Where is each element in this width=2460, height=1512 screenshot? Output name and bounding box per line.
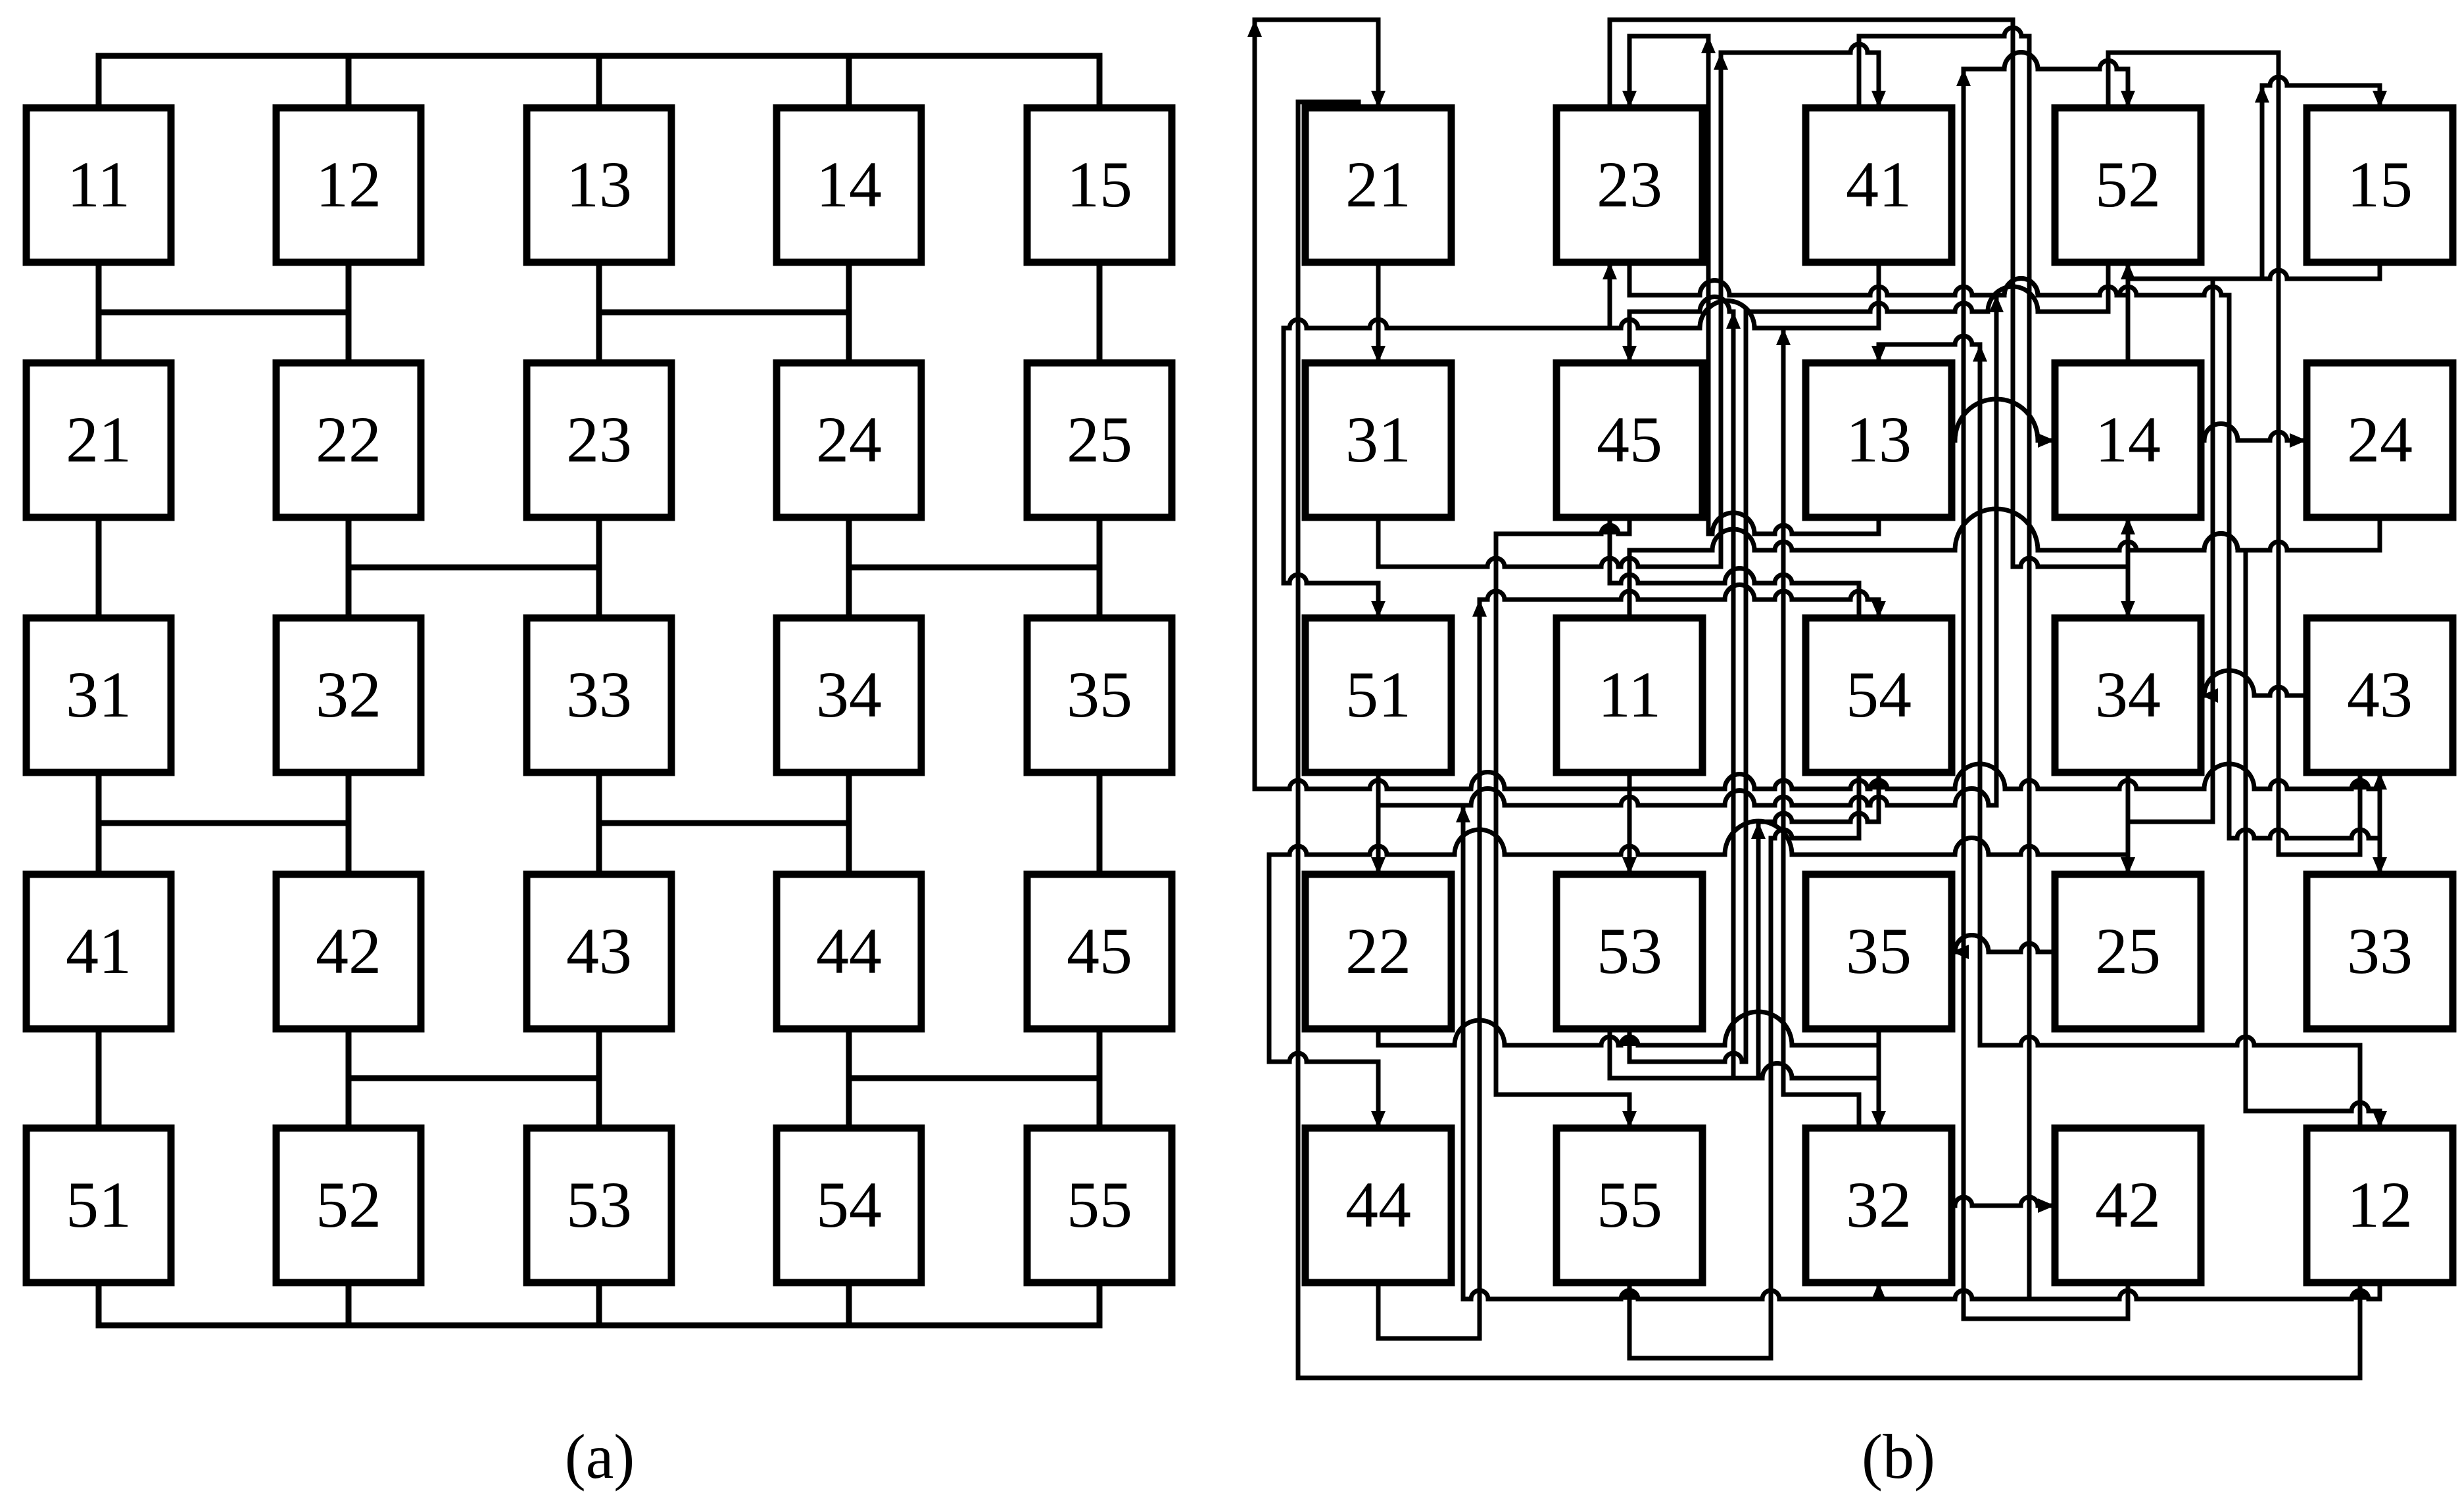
arrowhead	[1456, 805, 1470, 822]
caption-b: (b)	[1862, 1421, 1935, 1492]
grid-b-label-15: 15	[2347, 148, 2413, 221]
grid-a-label-52: 52	[316, 1168, 381, 1241]
grid-a-label-15: 15	[1067, 148, 1132, 221]
grid-b-label-24: 24	[2347, 403, 2413, 476]
grid-a-label-33: 33	[566, 658, 632, 731]
grid-a-label-55: 55	[1067, 1168, 1132, 1241]
grid-a-label-11: 11	[67, 148, 130, 221]
grid-b-label-53: 53	[1597, 914, 1662, 987]
grid-b-label-54: 54	[1846, 658, 1912, 731]
diagram-a-ordered-grid: 1112131415212223242531323334354142434445…	[26, 56, 1172, 1325]
net-wire	[1980, 1037, 2360, 1045]
grid-b-label-14: 14	[2095, 403, 2161, 476]
grid-a-label-34: 34	[816, 658, 882, 731]
net-wire	[1284, 300, 1879, 328]
grid-a-label-25: 25	[1067, 403, 1132, 476]
grid-a-label-23: 23	[566, 403, 632, 476]
grid-b-label-21: 21	[1345, 148, 1411, 221]
grid-b-label-23: 23	[1597, 148, 1662, 221]
grid-a-label-44: 44	[816, 914, 882, 987]
arrowhead	[1973, 344, 1987, 362]
net-wire	[1629, 764, 2380, 789]
net-wire	[1721, 44, 1879, 53]
figure-canvas: 1112131415212223242531323334354142434445…	[0, 0, 2460, 1512]
grid-b-label-13: 13	[1846, 403, 1912, 476]
arrowhead	[1247, 20, 1262, 37]
grid-b-label-33: 33	[2347, 914, 2413, 987]
arrowhead	[1701, 36, 1716, 53]
grid-a-label-51: 51	[66, 1168, 132, 1241]
grid-b-label-45: 45	[1597, 403, 1662, 476]
arrowhead	[1956, 69, 1971, 86]
grid-b-label-51: 51	[1345, 658, 1411, 731]
net-wire	[1378, 558, 1721, 567]
grid-a-label-42: 42	[316, 914, 381, 987]
grid-a-label-32: 32	[316, 658, 381, 731]
net-wire	[1269, 1053, 1378, 1062]
grid-b-label-52: 52	[2095, 148, 2161, 221]
grid-a-label-45: 45	[1067, 914, 1132, 987]
arrowhead	[1751, 822, 1766, 839]
grid-b-label-35: 35	[1846, 914, 1912, 987]
grid-a-label-22: 22	[316, 403, 381, 476]
net-wire	[1480, 585, 1879, 600]
net-wire	[2229, 830, 2380, 838]
scan-chain-figure: 1112131415212223242531323334354142434445…	[0, 0, 2460, 1512]
grid-b-label-55: 55	[1597, 1168, 1662, 1241]
grid-a-label-41: 41	[66, 914, 132, 987]
arrowhead	[1726, 312, 1741, 329]
arrowhead	[1776, 328, 1791, 345]
grid-a-label-14: 14	[816, 148, 882, 221]
net-wire	[1964, 53, 2128, 70]
grid-b-label-31: 31	[1345, 403, 1411, 476]
grid-a-label-24: 24	[816, 403, 882, 476]
net-wire	[1610, 300, 1783, 328]
net-wire	[2128, 534, 2380, 550]
grid-a-label-43: 43	[566, 914, 632, 987]
net-wire	[1746, 287, 2108, 312]
net-wire	[1859, 28, 2029, 36]
grid-b-label-34: 34	[2095, 658, 2161, 731]
grid-a-label-53: 53	[566, 1168, 632, 1241]
arrowhead	[1472, 600, 1487, 617]
grid-a-label-54: 54	[816, 1168, 882, 1241]
grid-b-label-22: 22	[1345, 914, 1411, 987]
arrowhead	[1714, 53, 1728, 70]
grid-b-label-11: 11	[1598, 658, 1661, 731]
grid-b-label-12: 12	[2347, 1168, 2413, 1241]
net-wire	[1269, 821, 2128, 855]
diagram-b-scrambled-grid: 2123415215314513142451115434432253352533…	[1247, 20, 2453, 1378]
grid-b-label-32: 32	[1846, 1168, 1912, 1241]
grid-a-label-35: 35	[1067, 658, 1132, 731]
net-wire	[1879, 1290, 2029, 1299]
grid-a-label-21: 21	[66, 403, 132, 476]
grid-b-label-42: 42	[2095, 1168, 2161, 1241]
grid-b-label-41: 41	[1846, 148, 1912, 221]
grid-a-label-31: 31	[66, 658, 132, 731]
grid-a-label-12: 12	[316, 148, 381, 221]
grid-b-label-25: 25	[2095, 914, 2161, 987]
net-wire	[1629, 1053, 1746, 1062]
caption-a: (a)	[565, 1421, 635, 1492]
arrowhead	[2255, 85, 2269, 103]
grid-b-label-44: 44	[1345, 1168, 1411, 1241]
grid-a-label-13: 13	[566, 148, 632, 221]
grid-b-label-43: 43	[2347, 658, 2413, 731]
